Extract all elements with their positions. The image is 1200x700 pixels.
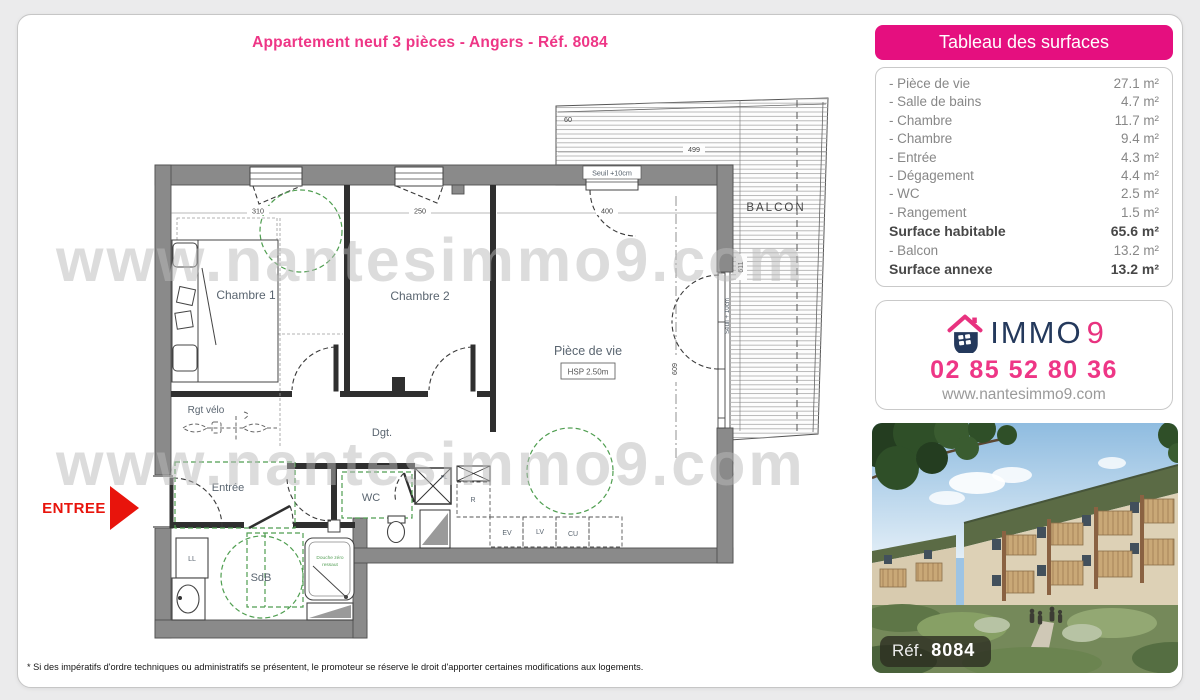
hsp-label: HSP 2.50m	[568, 368, 609, 377]
label-douche-1: Douche zéro	[316, 555, 344, 561]
table-row: - Chambre9.4 m²	[889, 130, 1159, 148]
row-value: 11.7 m²	[1115, 112, 1159, 130]
seuil-top-box: Seuil +10cm	[583, 166, 641, 179]
table-row-total: Surface habitable65.6 m²	[889, 222, 1159, 242]
table-row: - WC2.5 m²	[889, 185, 1159, 203]
dim-609: 609	[670, 363, 679, 375]
row-value: 4.3 m²	[1121, 149, 1159, 167]
surfaces-table-header: Tableau des surfaces	[875, 25, 1173, 60]
row-label: - Dégagement	[889, 167, 974, 185]
dim-400: 400	[601, 207, 613, 216]
label-r: R	[470, 497, 475, 504]
label-rgt-velo: Rgt vélo	[188, 405, 225, 416]
row-value: 65.6 m²	[1111, 222, 1159, 242]
watermark-band-2: www.nantesimmo9.com	[55, 430, 806, 498]
row-label: - Balcon	[889, 242, 938, 260]
ref-label: Réf.	[892, 641, 923, 660]
label-lv: LV	[536, 529, 544, 536]
label-ev: EV	[502, 530, 512, 537]
balcony-label: BALCON	[746, 202, 805, 214]
entree-marker-label: ENTREE	[42, 500, 106, 517]
dim-250: 250	[414, 207, 426, 216]
table-row: - Rangement1.5 m²	[889, 204, 1159, 222]
dim-310: 310	[252, 207, 264, 216]
page: Appartement neuf 3 pièces - Angers - Réf…	[0, 0, 1200, 700]
disclaimer-text: * Si des impératifs d'ordre techniques o…	[27, 662, 807, 672]
dim-499: 499	[688, 145, 700, 154]
row-label: - Rangement	[889, 204, 966, 222]
house-logo-icon	[944, 313, 986, 353]
row-label: - Entrée	[889, 149, 937, 167]
row-label: Surface annexe	[889, 260, 993, 280]
seuil-right-label: Seuil + 10cm	[724, 298, 731, 334]
building-photo: Réf.8084	[872, 423, 1178, 673]
row-label: - Chambre	[889, 130, 952, 148]
agency-website: www.nantesimmo9.com	[876, 386, 1172, 404]
bathroom-fixtures	[172, 516, 405, 620]
label-ll: LL	[188, 556, 196, 563]
label-douche-2: ressaut	[322, 562, 338, 568]
row-value: 9.4 m²	[1121, 130, 1159, 148]
brand-immo: IMMO	[990, 315, 1082, 351]
balcony-door: Seuil + 10cm	[672, 273, 731, 428]
seuil-top-label: Seuil +10cm	[592, 169, 632, 178]
table-row: - Dégagement4.4 m²	[889, 167, 1159, 185]
agency-phone: 02 85 52 80 36	[876, 356, 1172, 385]
row-value: 4.4 m²	[1121, 167, 1159, 185]
table-row-total: Surface annexe13.2 m²	[889, 260, 1159, 280]
ref-badge: Réf.8084	[880, 636, 991, 667]
row-value: 4.7 m²	[1121, 93, 1159, 111]
row-value: 2.5 m²	[1121, 185, 1159, 203]
row-value: 13.2 m²	[1111, 260, 1159, 280]
surfaces-table: - Pièce de vie27.1 m² - Salle de bains4.…	[875, 67, 1173, 287]
row-label: - WC	[889, 185, 920, 203]
page-title: Appartement neuf 3 pièces - Angers - Réf…	[20, 34, 840, 52]
table-row: - Balcon13.2 m²	[889, 242, 1159, 260]
row-value: 27.1 m²	[1114, 75, 1159, 93]
label-cu: CU	[568, 531, 578, 538]
brand-9: 9	[1087, 315, 1104, 351]
ref-value: 8084	[931, 640, 975, 660]
table-row: - Chambre11.7 m²	[889, 112, 1159, 130]
hsp-box: HSP 2.50m	[561, 363, 615, 379]
dim-60: 60	[564, 115, 572, 124]
row-label: - Salle de bains	[889, 93, 981, 111]
watermark-band-1: www.nantesimmo9.com	[55, 226, 806, 294]
agency-panel: IMMO9 02 85 52 80 36 www.nantesimmo9.com	[875, 300, 1173, 410]
table-row: - Entrée4.3 m²	[889, 149, 1159, 167]
agency-logo: IMMO9	[876, 313, 1172, 353]
wall-fixture	[328, 520, 340, 532]
row-value: 13.2 m²	[1114, 242, 1159, 260]
row-value: 1.5 m²	[1121, 204, 1159, 222]
row-label: - Pièce de vie	[889, 75, 970, 93]
label-sdb: SdB	[251, 572, 272, 584]
label-piece-de-vie: Pièce de vie	[554, 344, 622, 358]
table-row: - Pièce de vie27.1 m²	[889, 75, 1159, 93]
table-row: - Salle de bains4.7 m²	[889, 93, 1159, 111]
row-label: Surface habitable	[889, 222, 1006, 242]
row-label: - Chambre	[889, 112, 952, 130]
